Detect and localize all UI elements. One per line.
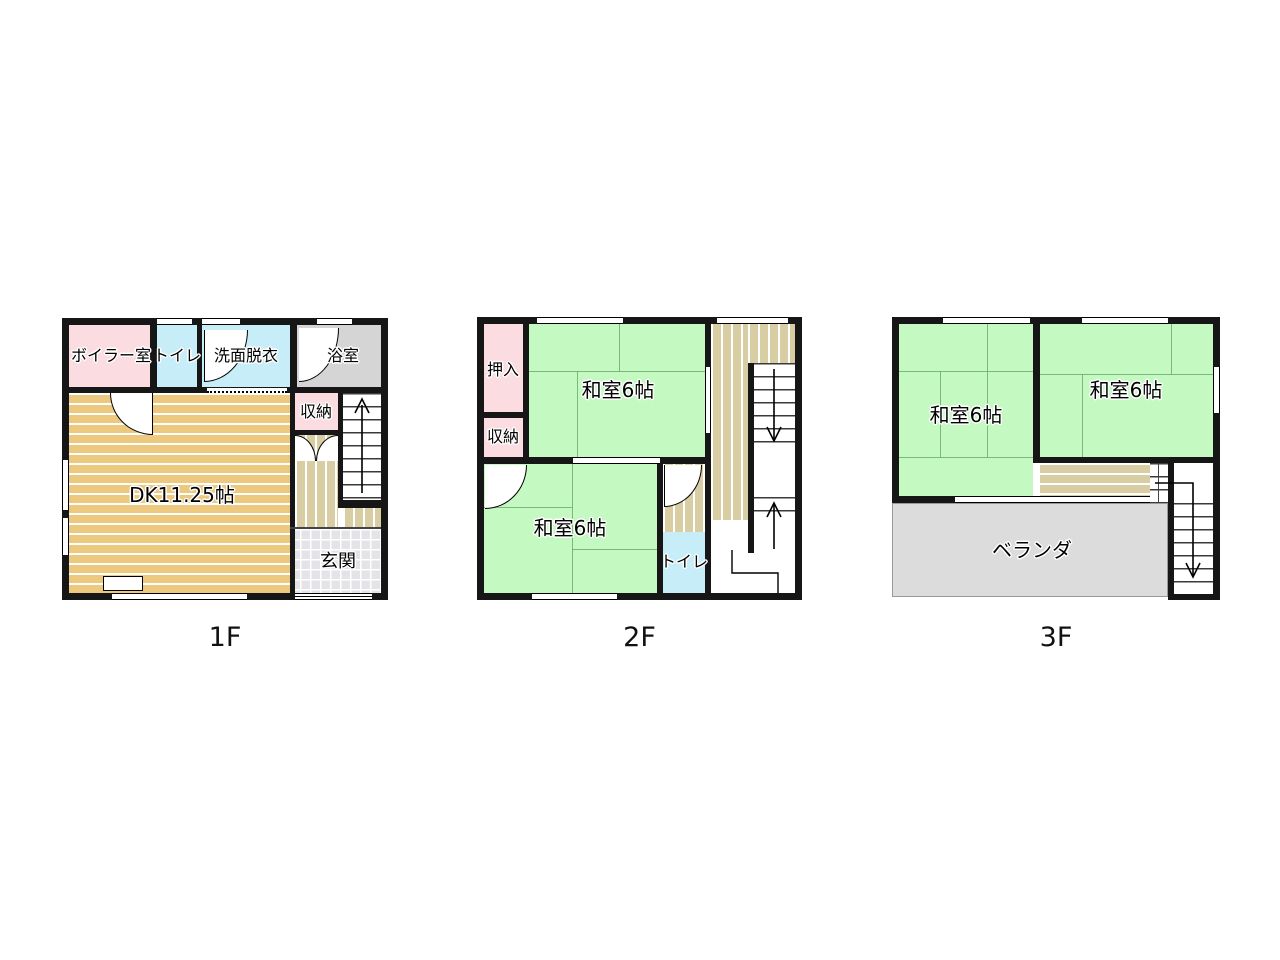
- room-label-washitsu-bottom: 和室6帖: [534, 518, 607, 538]
- window: [317, 318, 352, 325]
- stairs-landing-lines: [711, 520, 795, 593]
- wall: [338, 500, 381, 508]
- window: [943, 317, 1030, 324]
- window: [157, 318, 192, 325]
- room-label-toilet-1f: トイレ: [153, 348, 201, 364]
- tatami-line: [1082, 374, 1083, 457]
- floor-plan-1f: ボイラー室 トイレ 洗面脱衣 浴室 収納 DK11.25帖 玄関 1F: [62, 318, 388, 600]
- sliding-door: [705, 367, 711, 433]
- floor-plan-3f: 和室6帖 和室6帖 ベランダ 3F: [892, 317, 1220, 600]
- window: [62, 460, 69, 510]
- window: [955, 496, 1043, 503]
- tatami-line: [899, 371, 1033, 372]
- window: [532, 593, 617, 600]
- room-label-washroom: 洗面脱衣: [214, 348, 278, 364]
- tatami-line: [899, 457, 1033, 458]
- room-label-washitsu-left: 和室6帖: [930, 405, 1003, 425]
- entrance-door: [295, 593, 372, 600]
- wall: [62, 318, 69, 600]
- room-label-genkan: 玄関: [320, 553, 356, 571]
- wall: [290, 393, 295, 593]
- window: [1213, 367, 1220, 413]
- wall: [892, 317, 899, 503]
- hallway-2f-column: [711, 324, 748, 520]
- stairs-down-arrow-2f: [754, 363, 795, 447]
- room-label-bath: 浴室: [327, 348, 359, 364]
- tatami-line: [1040, 374, 1213, 375]
- room-label-storage-1f: 収納: [300, 404, 332, 420]
- wall: [290, 325, 297, 387]
- floor-label-2f: 2F: [477, 622, 802, 653]
- wall: [477, 593, 802, 600]
- room-label-storage-2f: 収納: [487, 429, 519, 445]
- room-label-washitsu-top: 和室6帖: [582, 380, 655, 400]
- floorplan-canvas: ボイラー室 トイレ 洗面脱衣 浴室 収納 DK11.25帖 玄関 1F: [0, 0, 1280, 960]
- tatami-line: [1171, 324, 1172, 374]
- sliding-door: [573, 457, 660, 464]
- window: [112, 593, 247, 600]
- tatami-line: [619, 324, 620, 372]
- floor-label-3f: 3F: [892, 622, 1220, 653]
- window: [1082, 317, 1168, 324]
- sliding-door: [1040, 496, 1150, 503]
- stairs-up-arrow-1f: [343, 393, 381, 500]
- dk-counter: [103, 576, 143, 591]
- tatami-line: [572, 549, 657, 550]
- room-label-veranda: ベランダ: [992, 540, 1072, 560]
- wall: [1033, 317, 1040, 463]
- window: [62, 518, 69, 555]
- wall: [1168, 594, 1220, 600]
- stairs-down-arrow-3f: [1150, 463, 1214, 588]
- genkan-step-line: [290, 527, 381, 529]
- wall: [523, 324, 529, 457]
- hallway-2f-top: [748, 324, 795, 363]
- room-label-boiler: ボイラー室: [71, 348, 151, 364]
- wall: [381, 318, 388, 600]
- wall: [484, 412, 529, 418]
- window: [202, 318, 240, 325]
- tatami-line: [529, 371, 705, 372]
- floor-label-1f: 1F: [62, 622, 388, 653]
- wall: [892, 317, 1220, 324]
- tatami-line: [577, 371, 578, 457]
- floor-plan-2f: 押入 収納 和室6帖 和室6帖 トイレ 2F: [477, 317, 802, 600]
- wall: [795, 317, 802, 600]
- tatami-line: [987, 324, 988, 371]
- room-label-washitsu-right: 和室6帖: [1090, 380, 1163, 400]
- window: [717, 317, 788, 324]
- room-label-toilet-2f: トイレ: [660, 554, 708, 570]
- room-label-oshiire: 押入: [487, 362, 519, 378]
- tatami-line: [484, 507, 572, 508]
- hallway-1f-right: [343, 508, 381, 527]
- window: [537, 317, 623, 324]
- opening-dashed: [207, 388, 287, 393]
- stairs-2f-mid-landing: [754, 447, 795, 497]
- stairs-3f-bottom: [1174, 587, 1213, 594]
- room-label-dk: DK11.25帖: [129, 485, 235, 505]
- wall: [657, 464, 663, 593]
- wall: [1213, 457, 1220, 600]
